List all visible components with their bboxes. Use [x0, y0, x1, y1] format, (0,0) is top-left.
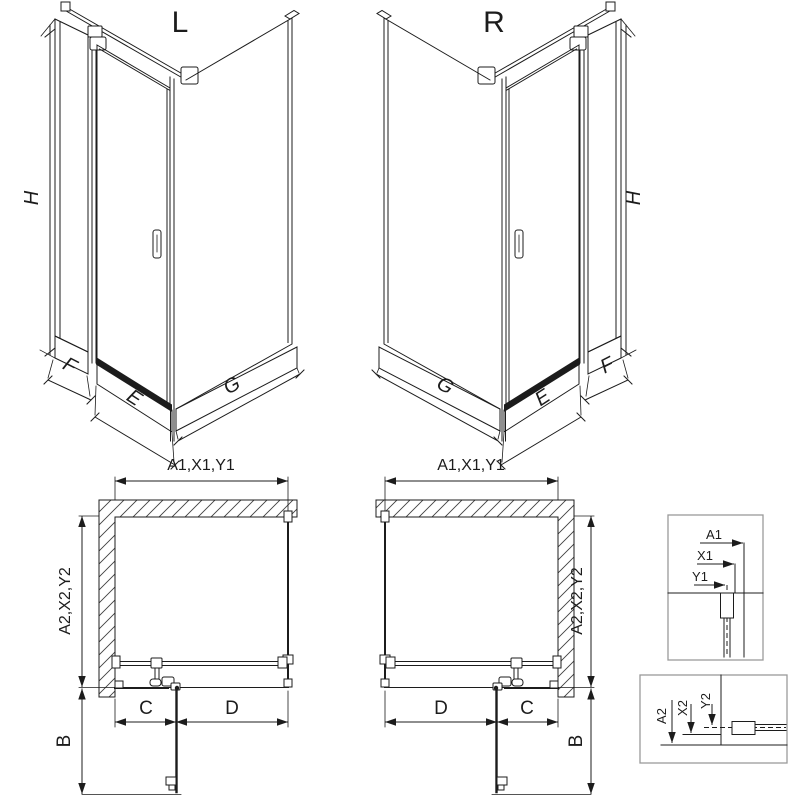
- plan-left-c-label: C: [139, 698, 153, 719]
- detail-y1-label: Y1: [692, 569, 708, 584]
- plan-left-d-label: D: [225, 698, 239, 719]
- dim-label-f-left: F: [59, 353, 81, 379]
- shower-enclosure-dimension-diagram: L R H F E G H F E G A1,X1,Y1 A2,X2,Y2 C …: [0, 0, 800, 800]
- iso-drawing-right: [372, 2, 636, 469]
- detail-a1-label: A1: [706, 527, 722, 542]
- dim-label-h-left: H: [21, 190, 43, 205]
- plan-right-depth-label: A2,X2,Y2: [569, 567, 586, 635]
- detail-x1-label: X1: [697, 548, 713, 563]
- detail-box-wall-profile-top: A1 X1 Y1: [668, 515, 763, 660]
- technical-drawing-svg: L R H F E G H F E G A1,X1,Y1 A2,X2,Y2 C …: [0, 0, 800, 800]
- plan-right-walls: [376, 500, 574, 697]
- variant-label-left: L: [172, 6, 189, 39]
- detail-x2-label: X2: [675, 700, 690, 716]
- plan-left-walls: [99, 500, 297, 697]
- plan-left-depth-label: A2,X2,Y2: [57, 567, 74, 635]
- detail-a2-label: A2: [654, 708, 669, 724]
- dim-label-f-right: F: [597, 352, 619, 378]
- detail-box-wall-profile-bottom: A2 X2 Y2: [640, 675, 787, 763]
- detail-y2-label: Y2: [698, 693, 713, 709]
- plan-left-width-label: A1,X1,Y1: [167, 457, 235, 474]
- variant-label-right: R: [483, 6, 505, 39]
- iso-drawing-left: [40, 2, 304, 469]
- plan-right-d-label: D: [434, 698, 448, 719]
- plan-right-c-label: C: [520, 698, 534, 719]
- plan-left-b-label: B: [54, 735, 75, 748]
- detail-wall-profile-bottom: [732, 722, 755, 735]
- detail-wall-profile-top: [721, 593, 734, 618]
- plan-right-width-label: A1,X1,Y1: [437, 457, 505, 474]
- dim-label-h-right: H: [623, 190, 645, 205]
- plan-right-b-label: B: [566, 735, 587, 748]
